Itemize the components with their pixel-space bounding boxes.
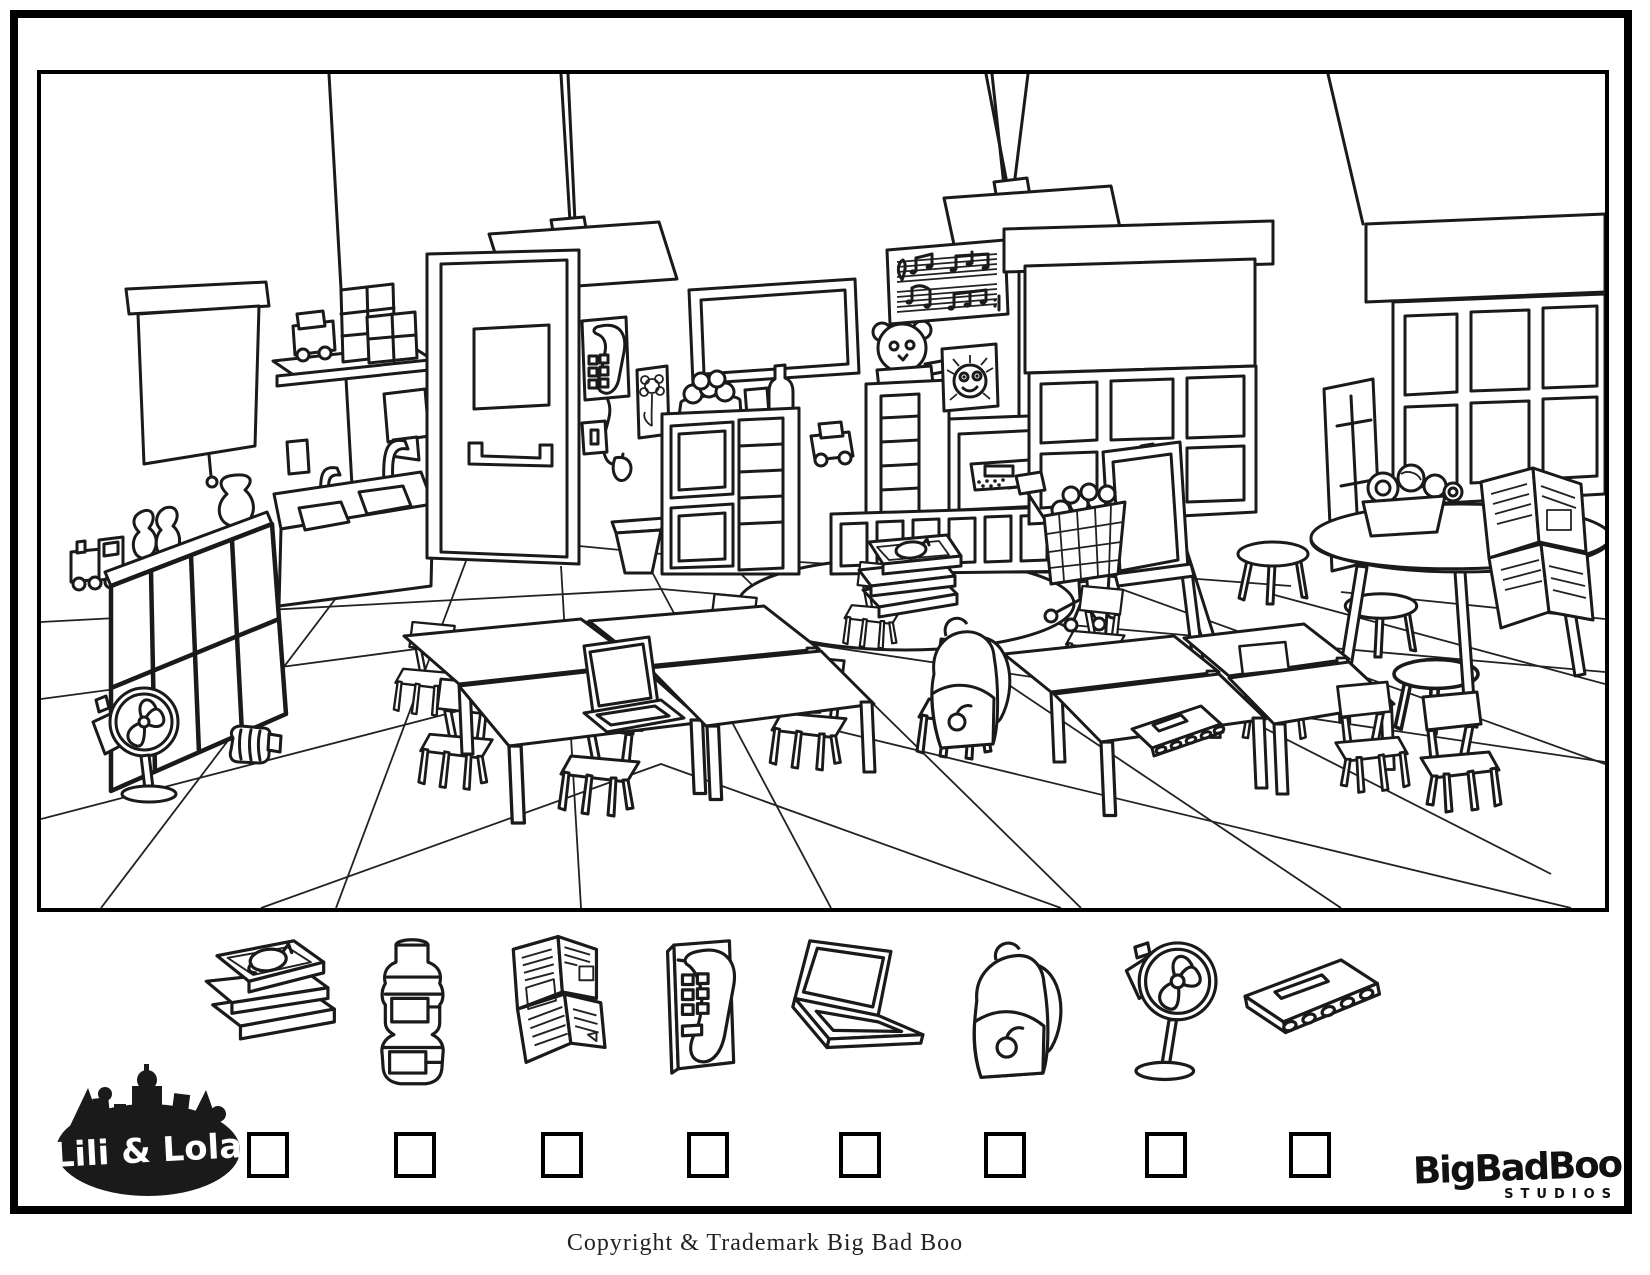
shelf-unit-a	[662, 365, 799, 574]
copyright-text: Copyright & Trademark Big Bad Boo	[0, 1230, 1530, 1257]
teddy-bear	[873, 321, 952, 388]
laptop-icon	[780, 928, 940, 1088]
projection-screen	[126, 282, 269, 487]
checkbox-water-bottle[interactable]	[394, 1132, 436, 1178]
light-switch	[582, 421, 607, 454]
newspaper-icon	[477, 928, 637, 1088]
standing-fan	[93, 688, 178, 802]
sun-drawing	[942, 344, 998, 411]
toy-shelf	[273, 284, 433, 386]
worksheet-page: Lili & Lola BigBadBoo STUDIOS Copyright …	[0, 0, 1650, 1275]
blocks	[341, 284, 417, 363]
backpack-icon	[932, 928, 1092, 1088]
stool	[1238, 542, 1308, 604]
checkbox-laptop[interactable]	[839, 1132, 881, 1178]
sink-counter	[274, 440, 433, 606]
toy-truck	[811, 422, 853, 466]
big-bad-boo-wordmark: BigBadBoo	[1412, 1142, 1621, 1192]
checkbox-standing-fan[interactable]	[1145, 1132, 1187, 1178]
wall-telephone	[582, 317, 631, 481]
water-bottle	[230, 726, 281, 763]
classroom-scene-frame	[37, 70, 1609, 912]
chair	[1421, 692, 1501, 812]
checkbox-backpack[interactable]	[984, 1132, 1026, 1178]
spiral-notebook-icon	[1228, 928, 1388, 1088]
door	[427, 250, 579, 564]
window-right	[1366, 214, 1605, 506]
trash-can	[612, 518, 665, 573]
checkbox-newspaper[interactable]	[541, 1132, 583, 1178]
classroom-scene	[41, 74, 1605, 908]
toy-cart	[293, 311, 335, 361]
music-poster	[887, 240, 1008, 324]
standing-fan-icon	[1088, 928, 1248, 1088]
lili-and-lola-logo: Lili & Lola	[48, 1058, 248, 1198]
wall-telephone-icon	[627, 928, 787, 1088]
big-bad-boo-logo: BigBadBoo STUDIOS	[1412, 1146, 1622, 1220]
checkbox-spiral-notebook[interactable]	[1289, 1132, 1331, 1178]
checkbox-wall-telephone[interactable]	[687, 1132, 729, 1178]
chair	[1336, 682, 1410, 792]
water-bottle-icon	[332, 928, 492, 1088]
checkbox-stack-of-books[interactable]	[247, 1132, 289, 1178]
phone-keypad	[589, 355, 608, 388]
newspaper-on-table	[1481, 468, 1593, 628]
